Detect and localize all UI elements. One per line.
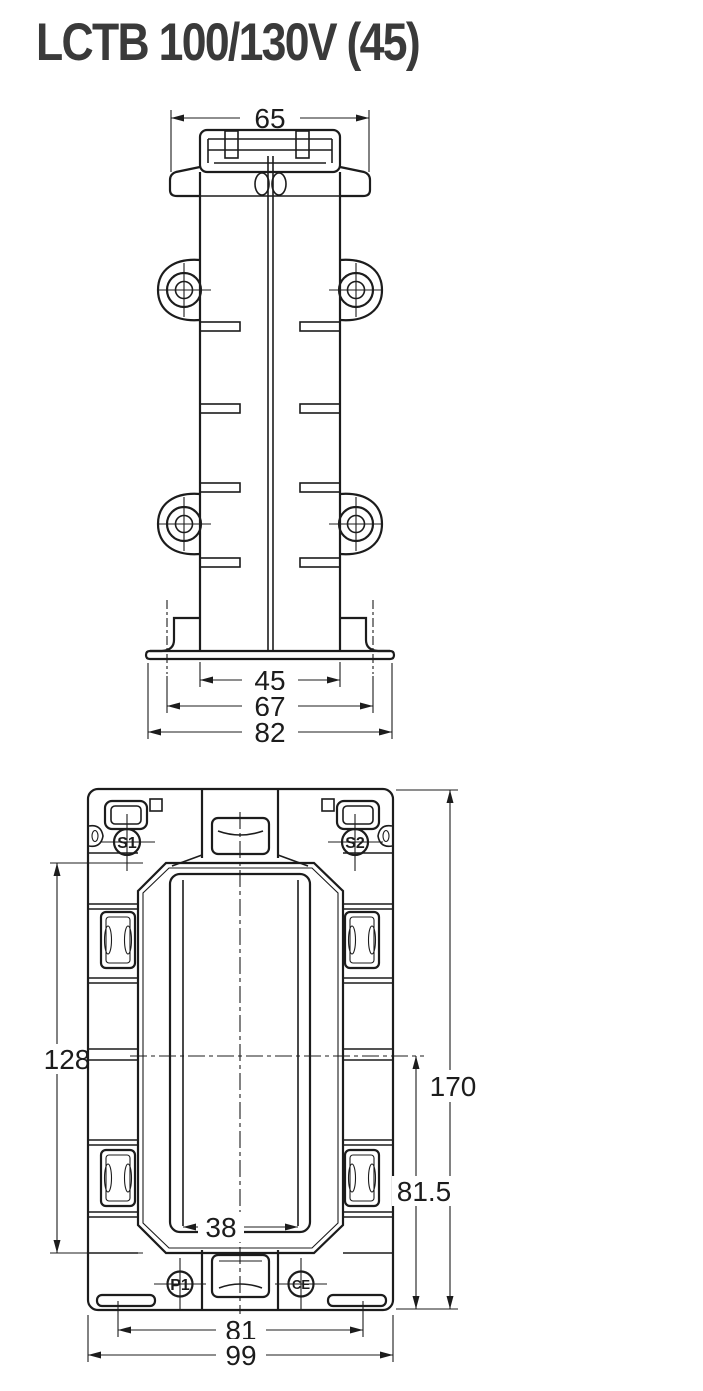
ear-notch-right [378, 826, 392, 847]
datasheet-page: LCTB 100/130V (45) 65 [0, 0, 703, 1391]
dim-label-38: 38 [205, 1212, 236, 1243]
terminal-screw-p1: P1 [154, 1258, 206, 1309]
mounting-boss-top-right [329, 260, 383, 320]
small-square-right [322, 799, 334, 811]
dim-label-99: 99 [225, 1340, 256, 1371]
mounting-boss-bottom-left [157, 494, 211, 554]
mounting-feet [146, 600, 394, 674]
bottom-slot-left [97, 1295, 155, 1306]
dimension-170: 170 [396, 790, 482, 1309]
terminal-cap [200, 130, 340, 172]
dimension-38: 38 [183, 1212, 298, 1243]
right-wing [340, 167, 370, 196]
mounting-boss-top-left [157, 260, 211, 320]
dim-label-82: 82 [254, 717, 285, 748]
cleat-lower-right [345, 1150, 379, 1206]
terminal-label-p1: P1 [170, 1277, 190, 1294]
dimension-drawing: 65 [0, 0, 703, 1391]
center-oval [255, 173, 286, 195]
mounting-boss-bottom-right [329, 494, 383, 554]
ce-mark-screw: CE [275, 1258, 327, 1309]
cleat-upper-left [101, 912, 135, 968]
left-wing [170, 167, 200, 196]
terminal-label-s2: S2 [345, 835, 365, 852]
body-rib-tabs [200, 322, 340, 567]
front-view: S1 S2 [30, 789, 482, 1371]
side-view: 65 [146, 102, 394, 748]
dimension-128: 128 [30, 863, 143, 1253]
ce-mark-label: CE [292, 1277, 310, 1292]
terminal-cover-s1 [105, 801, 147, 829]
small-square-left [150, 799, 162, 811]
cleat-upper-right [345, 912, 379, 968]
dim-label-170: 170 [430, 1071, 477, 1102]
ear-notch-left [89, 826, 103, 847]
bottom-slot-right [328, 1295, 386, 1306]
dim-label-128: 128 [44, 1044, 91, 1075]
dim-label-81-5: 81.5 [397, 1176, 452, 1207]
terminal-cover-s2 [337, 801, 379, 829]
terminal-label-s1: S1 [117, 835, 137, 852]
cleat-lower-left [101, 1150, 135, 1206]
